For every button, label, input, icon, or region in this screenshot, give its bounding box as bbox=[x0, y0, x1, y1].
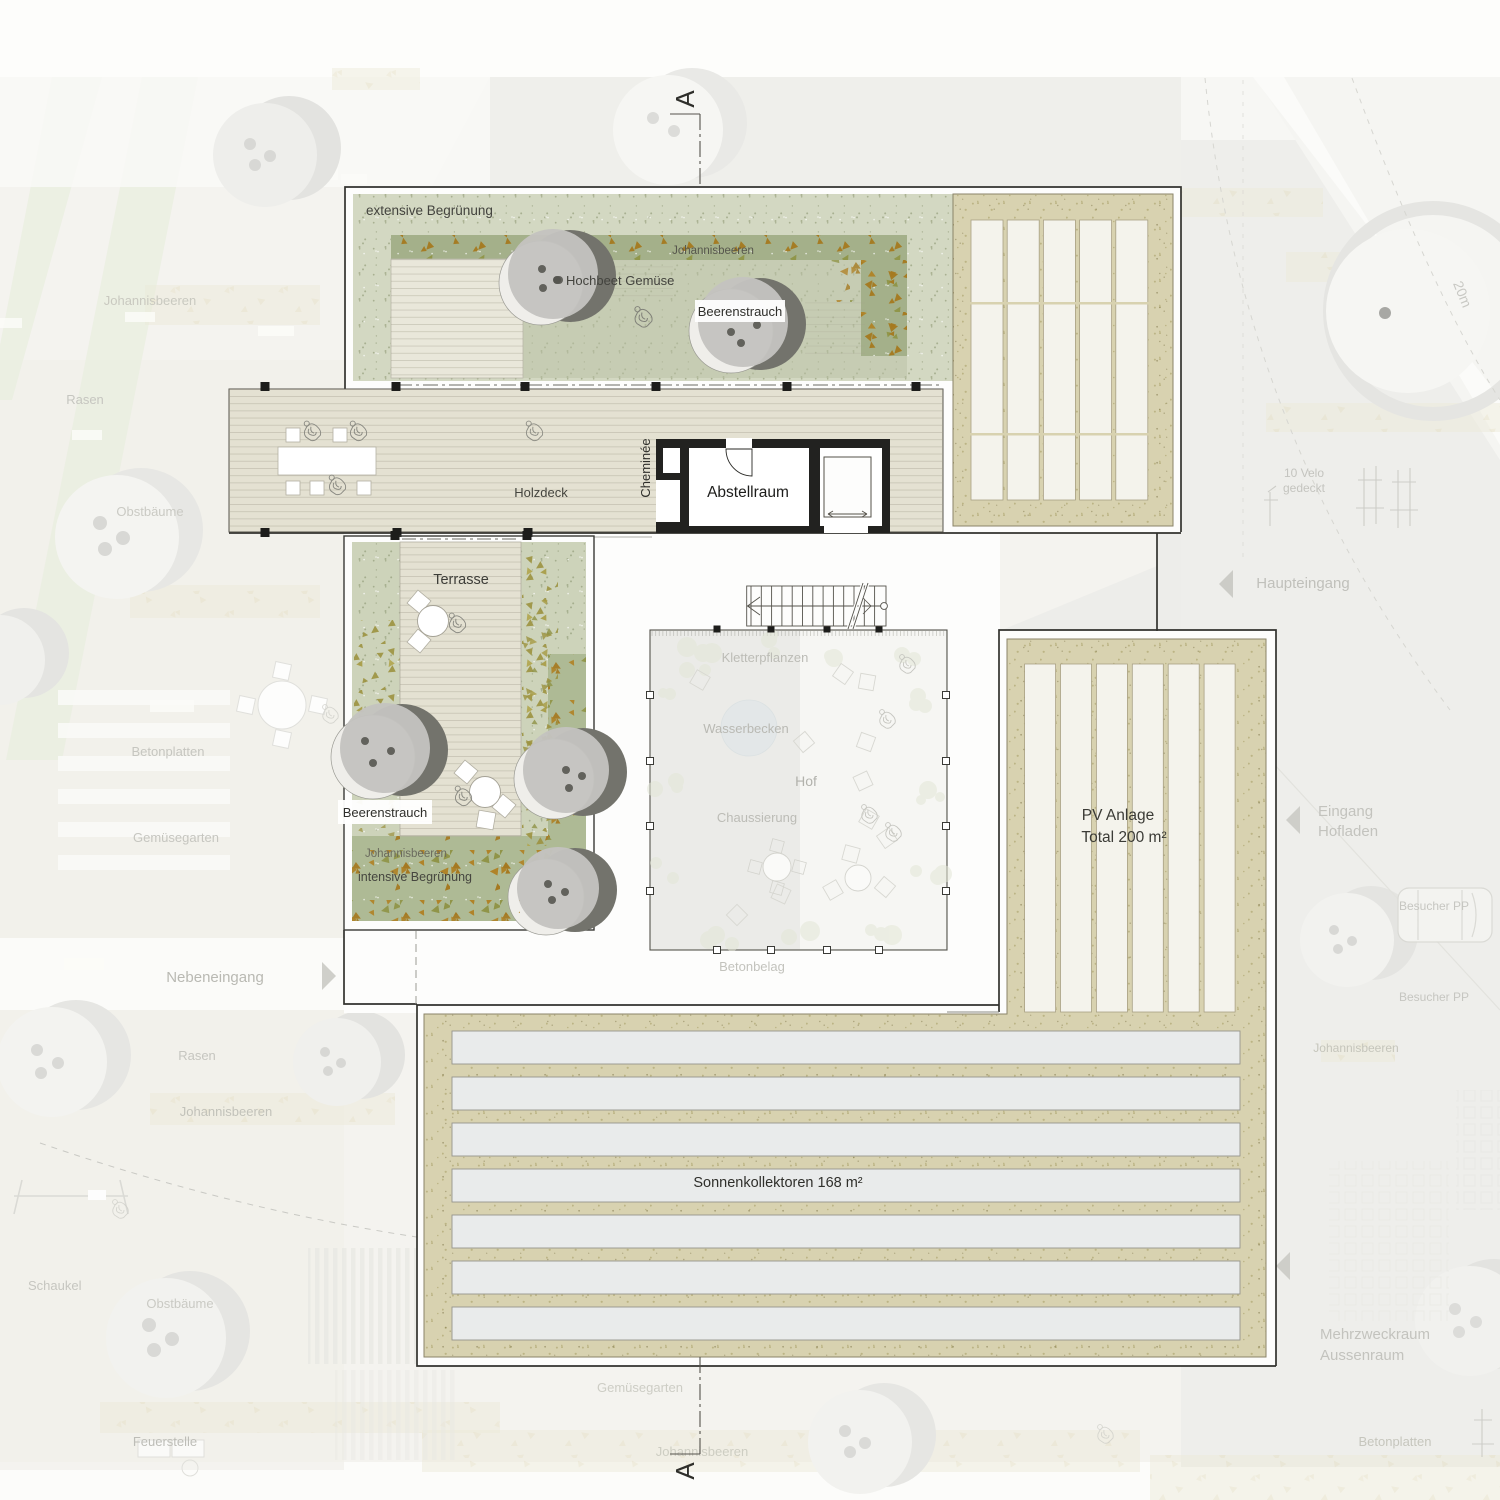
svg-text:Johannisbeeren: Johannisbeeren bbox=[656, 1444, 749, 1459]
svg-text:Johannisbeeren: Johannisbeeren bbox=[180, 1104, 273, 1119]
svg-text:Haupteingang: Haupteingang bbox=[1256, 575, 1349, 592]
svg-text:Wasserbecken: Wasserbecken bbox=[703, 721, 789, 736]
svg-text:Kletterpflanzen: Kletterpflanzen bbox=[722, 650, 809, 665]
svg-text:Johannisbeeren: Johannisbeeren bbox=[365, 848, 447, 860]
svg-text:gedeckt: gedeckt bbox=[1283, 481, 1326, 495]
svg-text:Hochbeet Gemüse: Hochbeet Gemüse bbox=[566, 273, 674, 288]
svg-text:Hofladen: Hofladen bbox=[1318, 823, 1378, 840]
svg-text:intensive Begrünung: intensive Begrünung bbox=[358, 870, 472, 884]
svg-text:Cheminée: Cheminée bbox=[638, 438, 653, 497]
svg-text:Rasen: Rasen bbox=[66, 392, 104, 407]
svg-text:extensive Begrünung: extensive Begrünung bbox=[366, 203, 493, 218]
svg-text:Nebeneingang: Nebeneingang bbox=[166, 969, 264, 986]
svg-text:Aussenraum: Aussenraum bbox=[1320, 1347, 1404, 1364]
svg-text:Johannisbeeren: Johannisbeeren bbox=[672, 245, 754, 257]
svg-text:Johannisbeeren: Johannisbeeren bbox=[1313, 1041, 1398, 1055]
svg-text:10 Velo: 10 Velo bbox=[1284, 466, 1324, 480]
svg-text:Abstellraum: Abstellraum bbox=[707, 484, 789, 501]
svg-text:Hof: Hof bbox=[795, 773, 817, 789]
svg-text:A: A bbox=[670, 90, 700, 108]
svg-text:Gemüsegarten: Gemüsegarten bbox=[133, 830, 219, 845]
svg-text:Sonnenkollektoren 168 m²: Sonnenkollektoren 168 m² bbox=[693, 1175, 862, 1191]
svg-text:Gemüsegarten: Gemüsegarten bbox=[597, 1380, 683, 1395]
svg-text:Feuerstelle: Feuerstelle bbox=[133, 1434, 197, 1449]
svg-text:Betonbelag: Betonbelag bbox=[719, 959, 785, 974]
svg-text:Holzdeck: Holzdeck bbox=[514, 485, 568, 500]
svg-text:Rasen: Rasen bbox=[178, 1048, 216, 1063]
svg-text:Beerenstrauch: Beerenstrauch bbox=[343, 805, 428, 820]
svg-text:Besucher PP: Besucher PP bbox=[1399, 899, 1469, 913]
svg-text:Betonplatten: Betonplatten bbox=[1358, 1434, 1431, 1449]
svg-text:Chaussierung: Chaussierung bbox=[717, 810, 797, 825]
svg-text:A: A bbox=[670, 1462, 700, 1480]
svg-text:Beerenstrauch: Beerenstrauch bbox=[698, 304, 783, 319]
svg-text:Total 200 m²: Total 200 m² bbox=[1081, 829, 1166, 846]
svg-text:Besucher PP: Besucher PP bbox=[1399, 990, 1469, 1004]
svg-text:Obstbäume: Obstbäume bbox=[116, 504, 183, 519]
svg-text:PV Anlage: PV Anlage bbox=[1082, 807, 1154, 824]
svg-text:Eingang: Eingang bbox=[1318, 803, 1373, 820]
svg-text:Mehrzweckraum: Mehrzweckraum bbox=[1320, 1326, 1430, 1343]
svg-text:Schaukel: Schaukel bbox=[28, 1278, 82, 1293]
svg-text:Johannisbeeren: Johannisbeeren bbox=[104, 293, 197, 308]
svg-text:Terrasse: Terrasse bbox=[433, 572, 489, 588]
svg-text:Obstbäume: Obstbäume bbox=[146, 1296, 213, 1311]
svg-text:Betonplatten: Betonplatten bbox=[131, 744, 204, 759]
